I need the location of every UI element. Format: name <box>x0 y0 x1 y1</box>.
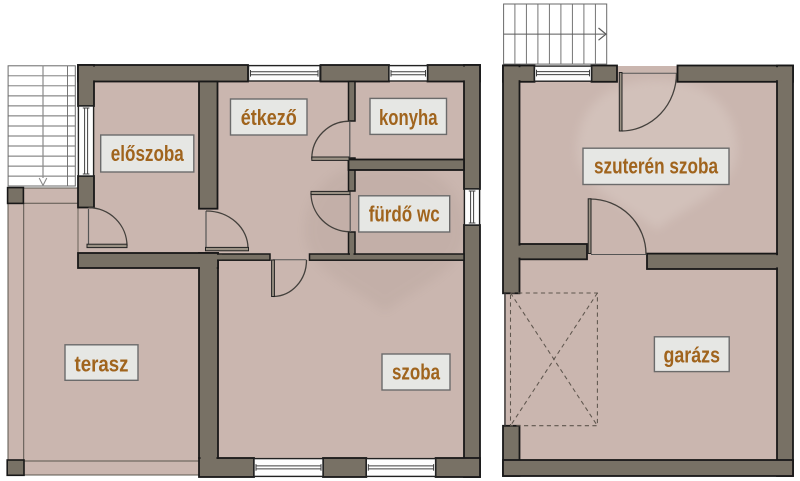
svg-text:fürdő wc: fürdő wc <box>369 201 440 226</box>
svg-text:terasz: terasz <box>75 352 129 377</box>
svg-text:előszoba: előszoba <box>111 141 185 166</box>
svg-text:szuterén szoba: szuterén szoba <box>594 154 719 179</box>
svg-text:garázs: garázs <box>664 343 721 368</box>
svg-text:konyha: konyha <box>379 105 438 130</box>
svg-text:szoba: szoba <box>392 359 441 384</box>
svg-text:étkező: étkező <box>241 105 297 130</box>
